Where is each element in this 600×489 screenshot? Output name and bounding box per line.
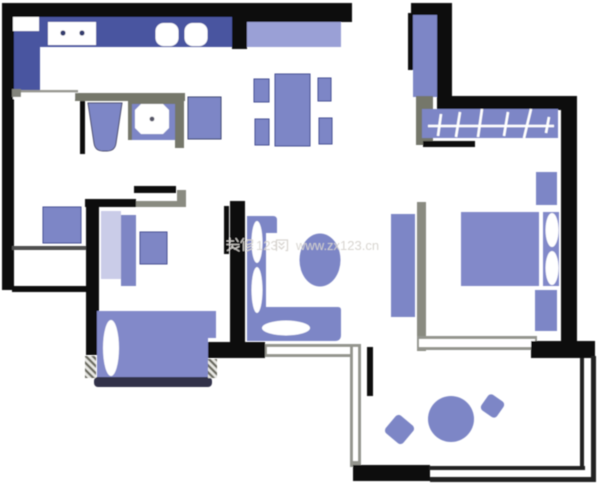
svg-text:123: 123	[256, 238, 278, 253]
svg-text:www.zx123.cn: www.zx123.cn	[295, 238, 379, 253]
